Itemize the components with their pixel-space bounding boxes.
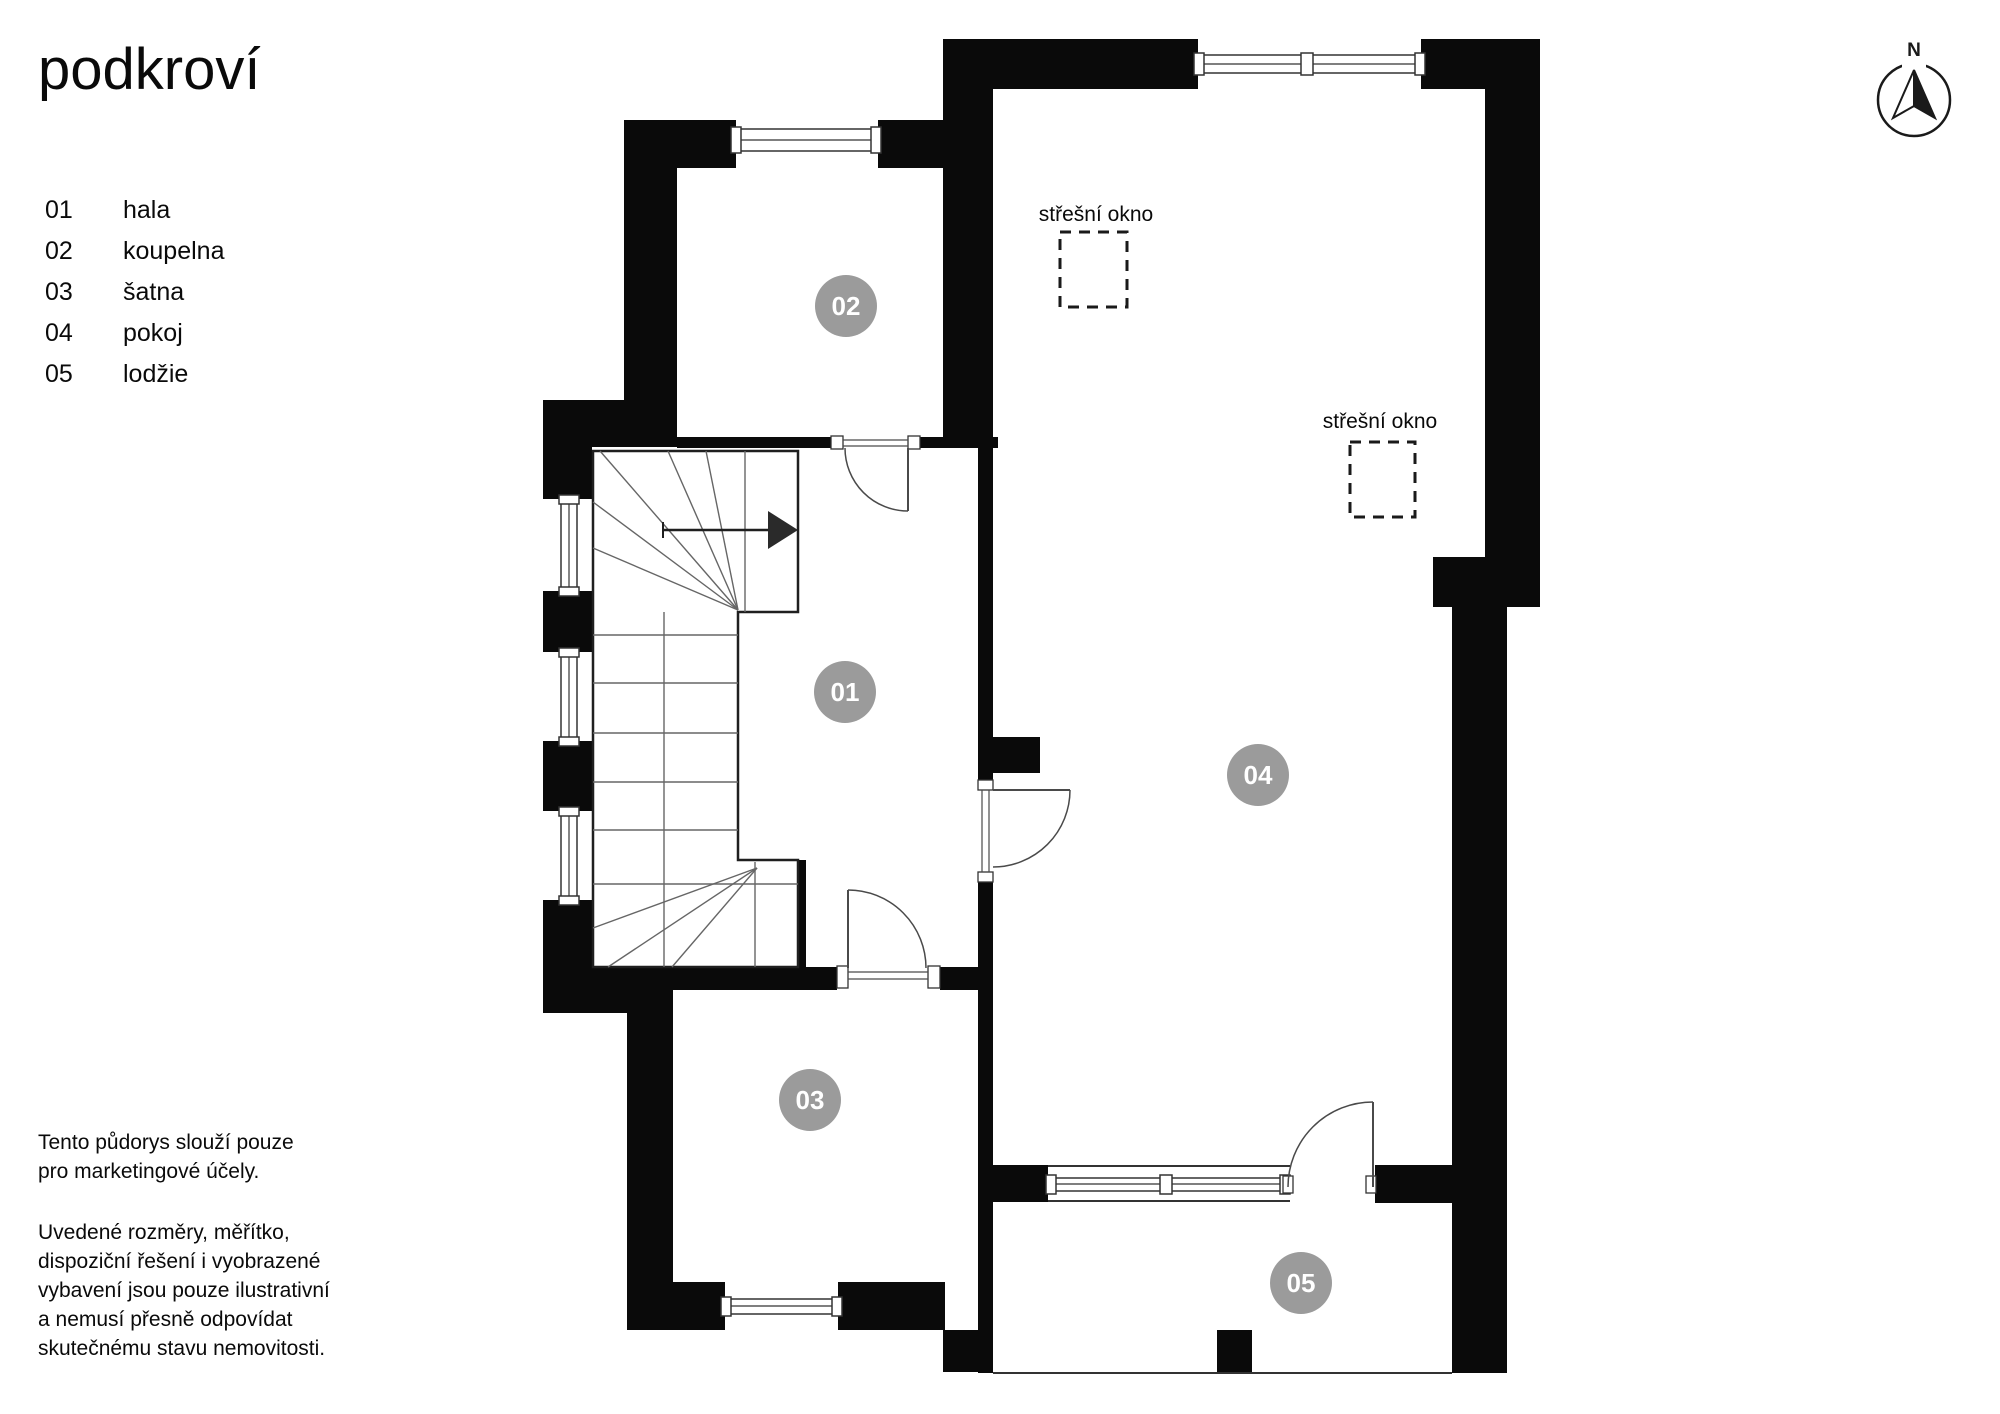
walls: [543, 39, 1540, 1373]
room-badge-01: 01: [814, 661, 876, 723]
window-icon: [559, 807, 579, 905]
room-badge-02: 02: [815, 275, 877, 337]
room-badge-03: 03: [779, 1069, 841, 1131]
doors: [831, 436, 1376, 1193]
door-arc: [831, 436, 920, 511]
north-arrow-icon: N: [1864, 40, 1964, 148]
floor-plan-page: podkroví 01 hala 02 koupelna 03 šatna 04…: [0, 0, 2000, 1414]
compass-north-label: N: [1904, 40, 1924, 62]
room-badge-04: 04: [1227, 744, 1289, 806]
stair-direction-arrow-icon: [663, 511, 798, 549]
floor-plan-drawing: [0, 0, 2000, 1414]
room-badge-05: 05: [1270, 1252, 1332, 1314]
roof-window-box-2: [1350, 442, 1415, 517]
window-icon: [731, 127, 881, 153]
door-arc: [1283, 1102, 1376, 1193]
window-icon: [559, 648, 579, 746]
window-icon: [559, 495, 579, 596]
door-arc: [837, 890, 940, 988]
window-icon: [1046, 1175, 1290, 1194]
roof-window-box-1: [1060, 232, 1127, 307]
roof-window-label-2: střešní okno: [1323, 410, 1437, 434]
door-arc: [978, 780, 1070, 882]
staircase: [593, 451, 798, 967]
roof-window-label-1: střešní okno: [1039, 203, 1153, 227]
window-icon: [1194, 53, 1425, 75]
roof-windows: [1060, 232, 1415, 517]
window-icon: [721, 1297, 842, 1316]
